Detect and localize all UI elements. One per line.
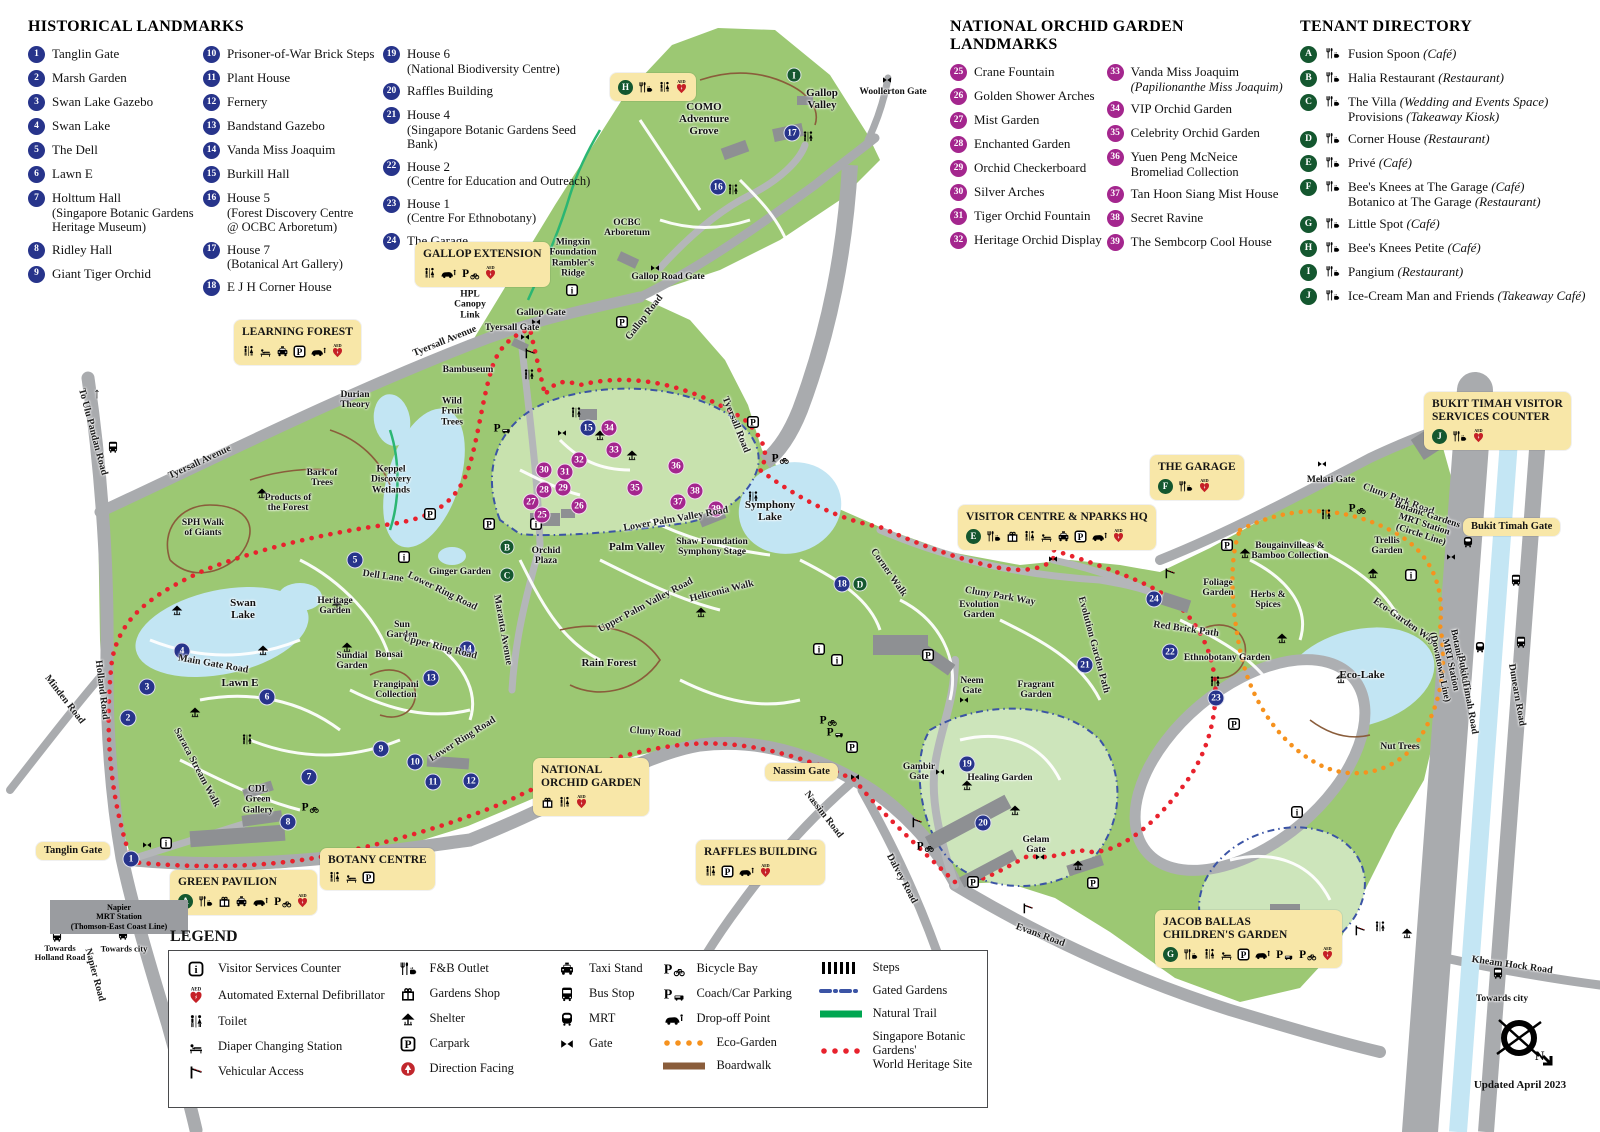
- callout-title: RAFFLES BUILDING: [704, 846, 817, 859]
- aed-icon: AED: [1472, 428, 1485, 444]
- taxi-icon: [235, 895, 248, 908]
- gate-icon: [557, 428, 568, 439]
- svg-text:P: P: [725, 868, 731, 878]
- svg-text:AED: AED: [333, 344, 341, 348]
- map-marker-24: 24: [1146, 591, 1163, 608]
- map-marker-9: 9: [373, 741, 390, 758]
- shelter-icon: [341, 641, 354, 654]
- bus-icon: [107, 441, 120, 454]
- legend-label: Natural Trail: [873, 1007, 937, 1021]
- svg-text:P: P: [1224, 541, 1230, 551]
- gate-icon: [1048, 554, 1059, 565]
- mrt-icon: [1462, 536, 1475, 549]
- napier-mrt-station-box: Napier MRT Station (Thomson-East Coast L…: [50, 900, 188, 934]
- bus-icon: [1515, 636, 1528, 649]
- legend-label: Bicycle Bay: [696, 962, 757, 976]
- map-marker-10: 10: [407, 754, 424, 771]
- shelter-icon: [331, 599, 344, 612]
- legend-title: LEGEND: [170, 928, 238, 946]
- fnb-icon: [197, 895, 214, 908]
- landmark-number-badge: 32: [950, 232, 967, 249]
- svg-text:P: P: [664, 988, 673, 1003]
- shop-icon: [400, 986, 416, 1002]
- landmark-number-badge: 22: [383, 159, 400, 176]
- carpark-icon: P: [1221, 539, 1234, 552]
- diaper-icon: [188, 1039, 204, 1055]
- gate-icon: [142, 840, 153, 851]
- shelter-icon: [1072, 859, 1085, 872]
- toilet-icon: [241, 734, 254, 747]
- legend-item: Taxi Stand: [554, 961, 661, 977]
- mrt-icon: [1474, 641, 1487, 654]
- landmark-label: House 4(Singapore Botanic Gardens Seed B…: [407, 107, 608, 152]
- landmark-number-badge: 37: [1107, 186, 1124, 203]
- callout-visitor-centre-nparks-hq: VISITOR CENTRE & NPARKS HQEPAED: [958, 505, 1156, 550]
- landmark-item-14: 14Vanda Miss Joaquim: [203, 142, 383, 159]
- legend-item: iVisitor Services Counter: [183, 961, 395, 977]
- map-marker-14: 14: [459, 641, 476, 658]
- p_bike-icon: P: [1298, 948, 1317, 961]
- mrt-icon: [559, 1011, 575, 1027]
- dropoff-icon: [310, 345, 327, 358]
- taxi-icon: [276, 345, 289, 358]
- fnb-icon: [1182, 948, 1199, 961]
- landmark-number-badge: 29: [950, 160, 967, 177]
- landmark-item-33: 33Vanda Miss Joaquim(Papilionanthe Miss …: [1107, 64, 1295, 94]
- map-marker-D: D: [853, 577, 868, 592]
- callout-title: BUKIT TIMAH VISITOR SERVICES COUNTER: [1432, 398, 1563, 424]
- landmark-item-4: 4Swan Lake: [28, 118, 203, 135]
- landmark-label: The Dell: [52, 142, 98, 158]
- tenant-directory: TENANT DIRECTORY AFusion Spoon (Café)BHa…: [1300, 18, 1590, 312]
- carpark-icon: P: [721, 865, 734, 878]
- tenant-item-D: DCorner House (Restaurant): [1300, 131, 1590, 148]
- svg-text:AED: AED: [1323, 947, 1331, 951]
- map-marker-16: 16: [710, 179, 727, 196]
- landmark-item-1: 1Tanglin Gate: [28, 46, 203, 63]
- historical-landmarks-title: HISTORICAL LANDMARKS: [28, 18, 608, 36]
- fnb-icon: [1324, 95, 1341, 108]
- aed-icon: AED: [296, 893, 309, 909]
- historical-column-2: 10Prisoner-of-War Brick Steps11Plant Hou…: [203, 46, 383, 303]
- toilet-icon: [523, 369, 536, 382]
- shelter-icon: [1239, 547, 1252, 560]
- callout-title: Nassim Gate: [773, 766, 830, 778]
- svg-text:P: P: [664, 963, 673, 978]
- legend-label: Carpark: [430, 1037, 470, 1051]
- landmark-sublabel: (Singapore Botanic Gardens Heritage Muse…: [52, 206, 194, 235]
- legend-label: Eco-Garden: [716, 1036, 776, 1050]
- toilet-icon: [1320, 509, 1333, 522]
- legend-label: Direction Facing: [430, 1062, 514, 1076]
- p_coach-icon: P: [826, 726, 845, 739]
- tenant-letter-badge: G: [1300, 216, 1317, 233]
- diaper-icon: [1220, 948, 1233, 961]
- map-marker-23: 23: [1208, 690, 1225, 707]
- callout-title: Bukit Timah Gate: [1471, 521, 1552, 533]
- map-marker-3: 3: [139, 679, 156, 696]
- map-marker-2: 2: [120, 710, 137, 727]
- landmark-item-13: 13Bandstand Gazebo: [203, 118, 383, 135]
- vehicular-icon: [1354, 924, 1367, 937]
- carpark-icon: P: [293, 345, 306, 358]
- svg-text:P: P: [1078, 533, 1084, 543]
- shelter-icon: [1335, 672, 1348, 685]
- carpark-icon: P: [846, 741, 859, 754]
- landmark-number-badge: 28: [950, 136, 967, 153]
- fnb-icon: [1177, 480, 1194, 493]
- map-marker-22: 22: [1162, 644, 1179, 661]
- svg-text:P: P: [462, 268, 469, 280]
- svg-text:P: P: [1241, 951, 1247, 961]
- svg-text:P: P: [849, 743, 855, 753]
- landmark-label: Golden Shower Arches: [974, 88, 1095, 104]
- landmark-label: Swan Lake: [52, 118, 110, 134]
- legend-item: PCarpark: [395, 1036, 554, 1052]
- landmark-label: Burkill Hall: [227, 166, 289, 182]
- map-marker-I: I: [787, 68, 802, 83]
- svg-text:P: P: [970, 878, 976, 888]
- map-marker-6: 6: [259, 689, 276, 706]
- toilet-icon: [188, 1014, 204, 1030]
- toilet-icon: [727, 184, 740, 197]
- landmark-item-18: 18E J H Corner House: [203, 279, 383, 296]
- map-marker-28: 28: [536, 482, 553, 499]
- legend-item: MRT: [554, 1011, 661, 1027]
- p_bike-icon: P: [916, 840, 935, 853]
- legend-label: Visitor Services Counter: [218, 962, 341, 976]
- dropoff-icon: [1254, 948, 1271, 961]
- landmark-item-15: 15Burkill Hall: [203, 166, 383, 183]
- tenant-letter-badge: J: [1300, 288, 1317, 305]
- landmark-number-badge: 23: [383, 196, 400, 213]
- tenant-letter-badge: E: [966, 529, 981, 544]
- gate-icon: [959, 695, 970, 706]
- legend-label: Toilet: [218, 1015, 247, 1029]
- landmark-item-9: 9Giant Tiger Orchid: [28, 266, 203, 283]
- landmark-number-badge: 38: [1107, 210, 1124, 227]
- carpark-icon: P: [616, 316, 629, 329]
- landmark-label: House 1(Centre For Ethnobotany): [407, 196, 536, 226]
- landmark-item-36: 36Yuen Peng McNeiceBromeliad Collection: [1107, 149, 1295, 179]
- legend-item: Vehicular Access: [183, 1064, 395, 1080]
- aed-icon: AED: [331, 343, 344, 359]
- landmark-label: House 2(Centre for Education and Outreac…: [407, 159, 590, 189]
- direction-icon: [400, 1061, 416, 1077]
- landmark-label: Vanda Miss Joaquim: [227, 142, 335, 158]
- svg-text:P: P: [1276, 949, 1283, 961]
- fnb-icon: [1324, 71, 1341, 84]
- landmark-label: Bandstand Gazebo: [227, 118, 325, 134]
- landmark-sublabel: (National Biodiversity Centre): [407, 62, 560, 76]
- landmark-label: Tan Hoon Siang Mist House: [1131, 186, 1279, 202]
- map-marker-17: 17: [784, 125, 801, 142]
- landmark-label: House 7(Botanical Art Gallery): [227, 242, 343, 272]
- bus-icon: [559, 986, 575, 1002]
- callout-the-garage: THE GARAGEFAED: [1150, 455, 1244, 500]
- legend-label: Diaper Changing Station: [218, 1040, 342, 1054]
- svg-text:AED: AED: [191, 988, 202, 993]
- aed-icon: AED: [759, 863, 772, 879]
- tenant-letter-badge: C: [1300, 94, 1317, 111]
- landmark-label: Plant House: [227, 70, 290, 86]
- callout-title: GALLOP EXTENSION: [423, 248, 542, 261]
- legend-item: Natural Trail: [818, 1007, 981, 1021]
- info-icon: i: [813, 643, 826, 656]
- landmark-number-badge: 26: [950, 88, 967, 105]
- legend-label: MRT: [589, 1012, 615, 1026]
- landmark-item-6: 6Lawn E: [28, 166, 203, 183]
- shelter-icon: [256, 487, 269, 500]
- callout-raffles-building: RAFFLES BUILDINGPAED: [696, 840, 825, 885]
- callout-title: Tanglin Gate: [44, 845, 102, 857]
- landmark-number-badge: 18: [203, 279, 220, 296]
- svg-text:AED: AED: [577, 795, 585, 799]
- gate-icon: [1035, 852, 1046, 863]
- svg-text:P: P: [917, 841, 924, 853]
- shelter-icon: [1009, 804, 1022, 817]
- callout-jacob-ballas-childrens-garden: JACOB BALLAS CHILDREN'S GARDENGPPPAED: [1155, 910, 1342, 968]
- landmark-item-39: 39The Sembcorp Cool House: [1107, 234, 1295, 251]
- carpark-icon: P: [400, 1036, 416, 1052]
- tenant-label: Provisions (Takeaway Kiosk): [1348, 109, 1499, 124]
- dropoff-icon: [738, 865, 755, 878]
- landmark-label: Mist Garden: [974, 112, 1039, 128]
- shelter-icon: [171, 604, 184, 617]
- aed-icon: AED: [575, 794, 588, 810]
- callout-gallop-extension: GALLOP EXTENSIONPAED: [415, 242, 550, 287]
- historical-column-3: 19House 6(National Biodiversity Centre)2…: [383, 46, 608, 257]
- svg-text:P: P: [1090, 879, 1096, 889]
- landmark-label: Silver Arches: [974, 184, 1044, 200]
- landmark-item-31: 31Tiger Orchid Fountain: [950, 208, 1107, 225]
- landmark-sublabel: (Papilionanthe Miss Joaquim): [1131, 80, 1283, 94]
- landmark-item-5: 5The Dell: [28, 142, 203, 159]
- tenant-item-I: IPangium (Restaurant): [1300, 264, 1590, 281]
- shelter-icon: [1401, 927, 1414, 940]
- map-marker-31: 31: [557, 464, 574, 481]
- tenant-letter-badge: J: [1432, 429, 1447, 444]
- landmark-label: Crane Fountain: [974, 64, 1055, 80]
- diaper-icon: [345, 871, 358, 884]
- tenant-item-J: JIce-Cream Man and Friends (Takeaway Caf…: [1300, 288, 1590, 305]
- vehicular-icon: [911, 816, 924, 829]
- boardwalk-icon: [662, 1059, 706, 1073]
- info-icon: i: [160, 837, 173, 850]
- landmark-label: House 5(Forest Discovery Centre @ OCBC A…: [227, 190, 353, 235]
- landmark-number-badge: 27: [950, 112, 967, 129]
- gate-icon: [559, 1036, 575, 1052]
- dropoff-icon: [1091, 530, 1108, 543]
- landmark-item-7: 7Holttum Hall(Singapore Botanic Gardens …: [28, 190, 203, 235]
- tenant-label: Ice-Cream Man and Friends (Takeaway Café…: [1348, 288, 1585, 303]
- legend-column-5: StepsGated GardensNatural TrailSingapore…: [818, 961, 981, 1101]
- callout-bukit-timah-gate: Bukit Timah Gate: [1463, 518, 1560, 536]
- tenant-label: Bee's Knees Petite (Café): [1348, 240, 1481, 255]
- legend-label: Boardwalk: [716, 1059, 771, 1073]
- landmark-number-badge: 20: [383, 83, 400, 100]
- carpark-icon: P: [1087, 877, 1100, 890]
- landmark-label: House 6(National Biodiversity Centre): [407, 46, 560, 76]
- svg-text:P: P: [1349, 503, 1356, 515]
- legend-item: Eco-Garden: [661, 1036, 817, 1050]
- tenant-label: Privé (Café): [1348, 155, 1412, 170]
- svg-text:P: P: [404, 1039, 411, 1051]
- legend-label: Gated Gardens: [873, 984, 948, 998]
- gate-icon: [850, 772, 861, 783]
- landmark-number-badge: 19: [383, 46, 400, 63]
- gate-icon: [882, 75, 893, 86]
- svg-text:P: P: [486, 520, 492, 530]
- taxi-icon: [1057, 530, 1070, 543]
- toilet-icon: [1023, 530, 1036, 543]
- aed-icon: AED: [1112, 528, 1125, 544]
- landmark-item-30: 30Silver Arches: [950, 184, 1107, 201]
- landmark-item-8: 8Ridley Hall: [28, 242, 203, 259]
- tenant-directory-title: TENANT DIRECTORY: [1300, 18, 1590, 36]
- info-icon: i: [398, 551, 411, 564]
- diaper-icon: [259, 345, 272, 358]
- landmark-number-badge: 21: [383, 107, 400, 124]
- landmark-label: E J H Corner House: [227, 279, 332, 295]
- map-marker-C: C: [500, 568, 515, 583]
- tenant-item-F: FBee's Knees at The Garage (Café)Botanic…: [1300, 179, 1590, 209]
- landmark-label: Enchanted Garden: [974, 136, 1070, 152]
- whs-icon: [819, 1044, 863, 1058]
- landmark-label: Raffles Building: [407, 83, 493, 99]
- shop-icon: [218, 895, 231, 908]
- legend-label: Taxi Stand: [589, 962, 643, 976]
- carpark-icon: P: [483, 518, 496, 531]
- vehicular-icon: [1022, 902, 1035, 915]
- aed-icon: AED: [188, 986, 204, 1005]
- landmark-item-16: 16House 5(Forest Discovery Centre @ OCBC…: [203, 190, 383, 235]
- landmark-item-20: 20Raffles Building: [383, 83, 608, 100]
- svg-text:AED: AED: [298, 894, 306, 898]
- ginger-pond: [438, 547, 466, 565]
- shelter-icon: [257, 644, 270, 657]
- p_bike-icon: P: [819, 714, 838, 727]
- landmark-label: Yuen Peng McNeiceBromeliad Collection: [1131, 149, 1239, 179]
- tenant-letter-badge: B: [1300, 70, 1317, 87]
- tenant-item-A: AFusion Spoon (Café): [1300, 46, 1590, 63]
- bus-icon: [1510, 574, 1523, 587]
- landmark-number-badge: 30: [950, 184, 967, 201]
- landmark-number-badge: 16: [203, 190, 220, 207]
- callout-title: THE GARAGE: [1158, 461, 1236, 474]
- landmark-item-17: 17House 7(Botanical Art Gallery): [203, 242, 383, 272]
- landmark-number-badge: 35: [1107, 125, 1124, 142]
- map-marker-21: 21: [1077, 657, 1094, 674]
- callout-title: GREEN PAVILION: [178, 876, 309, 889]
- landmark-item-28: 28Enchanted Garden: [950, 136, 1107, 153]
- landmark-label: Tanglin Gate: [52, 46, 119, 62]
- svg-text:AED: AED: [677, 80, 685, 84]
- fnb-icon: [1451, 430, 1468, 443]
- tenant-label: Little Spot (Café): [1348, 216, 1440, 231]
- map-marker-19: 19: [959, 756, 976, 773]
- historical-column-1: 1Tanglin Gate2Marsh Garden3Swan Lake Gaz…: [28, 46, 203, 290]
- p_bike-icon: P: [461, 267, 480, 280]
- tenant-letter-badge: D: [1300, 131, 1317, 148]
- toilet-icon: [1209, 676, 1222, 689]
- carpark-icon: P: [362, 871, 375, 884]
- tenant-item-B: BHalia Restaurant (Restaurant): [1300, 70, 1590, 87]
- shelter-icon: [961, 779, 974, 792]
- tenant-label: The Villa (Wedding and Events Space): [1348, 94, 1548, 109]
- callout-title: LEARNING FOREST: [242, 326, 353, 339]
- landmark-label: Secret Ravine: [1131, 210, 1204, 226]
- landmark-number-badge: 33: [1107, 64, 1124, 81]
- legend-item: Gated Gardens: [818, 984, 981, 998]
- tenant-label: Bee's Knees at The Garage (Café): [1348, 179, 1524, 194]
- toilet-icon: [747, 491, 760, 504]
- fnb-icon: [1324, 217, 1341, 230]
- toilet-icon: [570, 407, 583, 420]
- landmark-label: Marsh Garden: [52, 70, 127, 86]
- svg-text:P: P: [427, 510, 433, 520]
- landmark-label: Heritage Orchid Display: [974, 232, 1102, 248]
- fnb-icon: [398, 961, 418, 977]
- landmark-label: Lawn E: [52, 166, 93, 182]
- landmark-label: Swan Lake Gazebo: [52, 94, 153, 110]
- svg-text:P: P: [302, 802, 309, 814]
- landmark-number-badge: 1: [28, 46, 45, 63]
- map-marker-35: 35: [627, 480, 644, 497]
- carpark-icon: P: [922, 649, 935, 662]
- map-marker-7: 7: [301, 769, 318, 786]
- vehicular-icon: [1164, 567, 1177, 580]
- toilet-icon: [802, 131, 815, 144]
- landmark-item-34: 34VIP Orchid Garden: [1107, 101, 1295, 118]
- aed-icon: AED: [675, 79, 688, 95]
- svg-text:P: P: [772, 453, 779, 465]
- legend-item: Boardwalk: [661, 1059, 817, 1073]
- landmark-label: Ridley Hall: [52, 242, 112, 258]
- fnb-icon: [1324, 289, 1341, 302]
- tenant-label: Corner House (Restaurant): [1348, 131, 1490, 146]
- svg-text:P: P: [820, 715, 827, 727]
- svg-text:AED: AED: [761, 864, 769, 868]
- landmark-label: Holttum Hall(Singapore Botanic Gardens H…: [52, 190, 194, 235]
- landmark-item-3: 3Swan Lake Gazebo: [28, 94, 203, 111]
- landmark-label: Vanda Miss Joaquim(Papilionanthe Miss Jo…: [1131, 64, 1283, 94]
- landmark-item-35: 35Celebrity Orchid Garden: [1107, 125, 1295, 142]
- landmark-number-badge: 8: [28, 242, 45, 259]
- svg-text:P: P: [274, 896, 281, 908]
- landmark-item-21: 21House 4(Singapore Botanic Gardens Seed…: [383, 107, 608, 152]
- landmark-label: Fernery: [227, 94, 267, 110]
- svg-text:P: P: [925, 651, 931, 661]
- map-marker-29: 29: [555, 480, 572, 497]
- legend-label: Singapore Botanic Gardens' World Heritag…: [873, 1030, 981, 1071]
- legend-item: Toilet: [183, 1014, 395, 1030]
- landmark-item-32: 32Heritage Orchid Display: [950, 232, 1107, 249]
- landmark-number-badge: 15: [203, 166, 220, 183]
- landmark-item-38: 38Secret Ravine: [1107, 210, 1295, 227]
- tenant-letter-badge: F: [1300, 179, 1317, 196]
- vehicular-icon: [188, 1064, 204, 1080]
- legend-item: AEDAutomated External Defibrillator: [183, 986, 395, 1005]
- tenant-letter-badge: F: [1158, 479, 1173, 494]
- aed-icon: AED: [484, 265, 497, 281]
- carpark-icon: P: [1237, 948, 1250, 961]
- svg-text:P: P: [297, 348, 303, 358]
- legend-item: Singapore Botanic Gardens' World Heritag…: [818, 1030, 981, 1071]
- info-icon: i: [831, 654, 844, 667]
- toilet-icon: [1203, 948, 1216, 961]
- landmark-item-29: 29Orchid Checkerboard: [950, 160, 1107, 177]
